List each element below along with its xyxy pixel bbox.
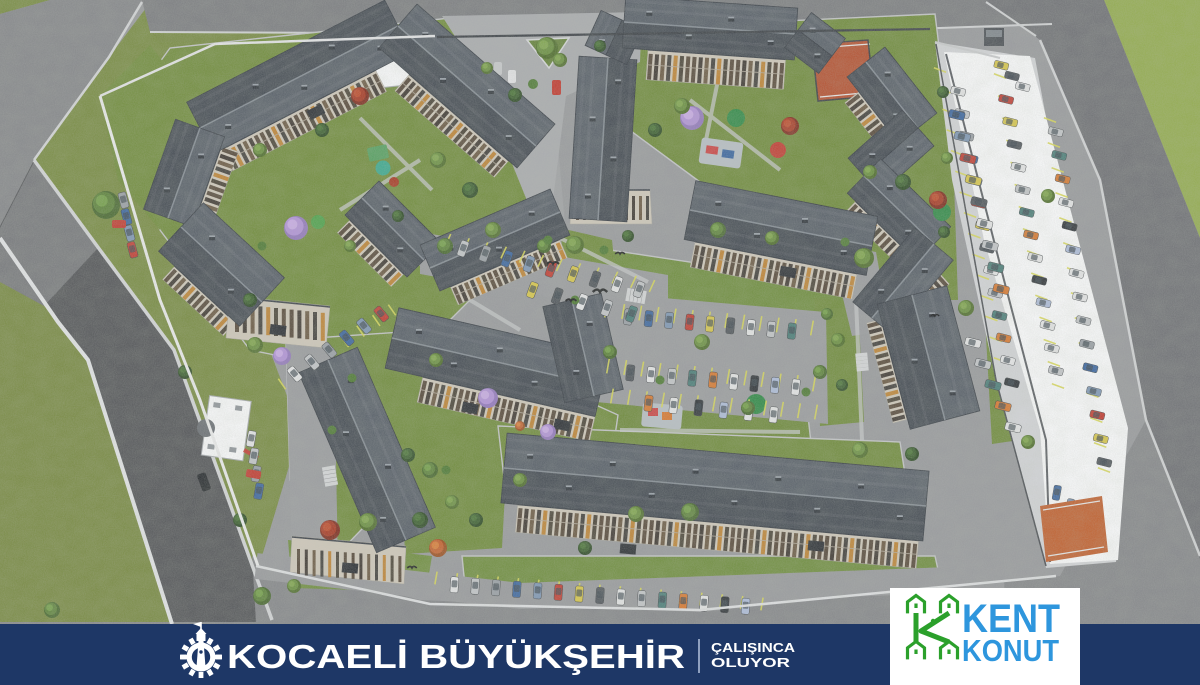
svg-text:KONUT: KONUT <box>962 633 1059 668</box>
svg-text:ÇALIŞINCA: ÇALIŞINCA <box>711 641 795 655</box>
svg-text:KOCAELİ BÜYÜKŞEHİR: KOCAELİ BÜYÜKŞEHİR <box>227 638 685 675</box>
svg-text:OLUYOR: OLUYOR <box>711 656 790 670</box>
